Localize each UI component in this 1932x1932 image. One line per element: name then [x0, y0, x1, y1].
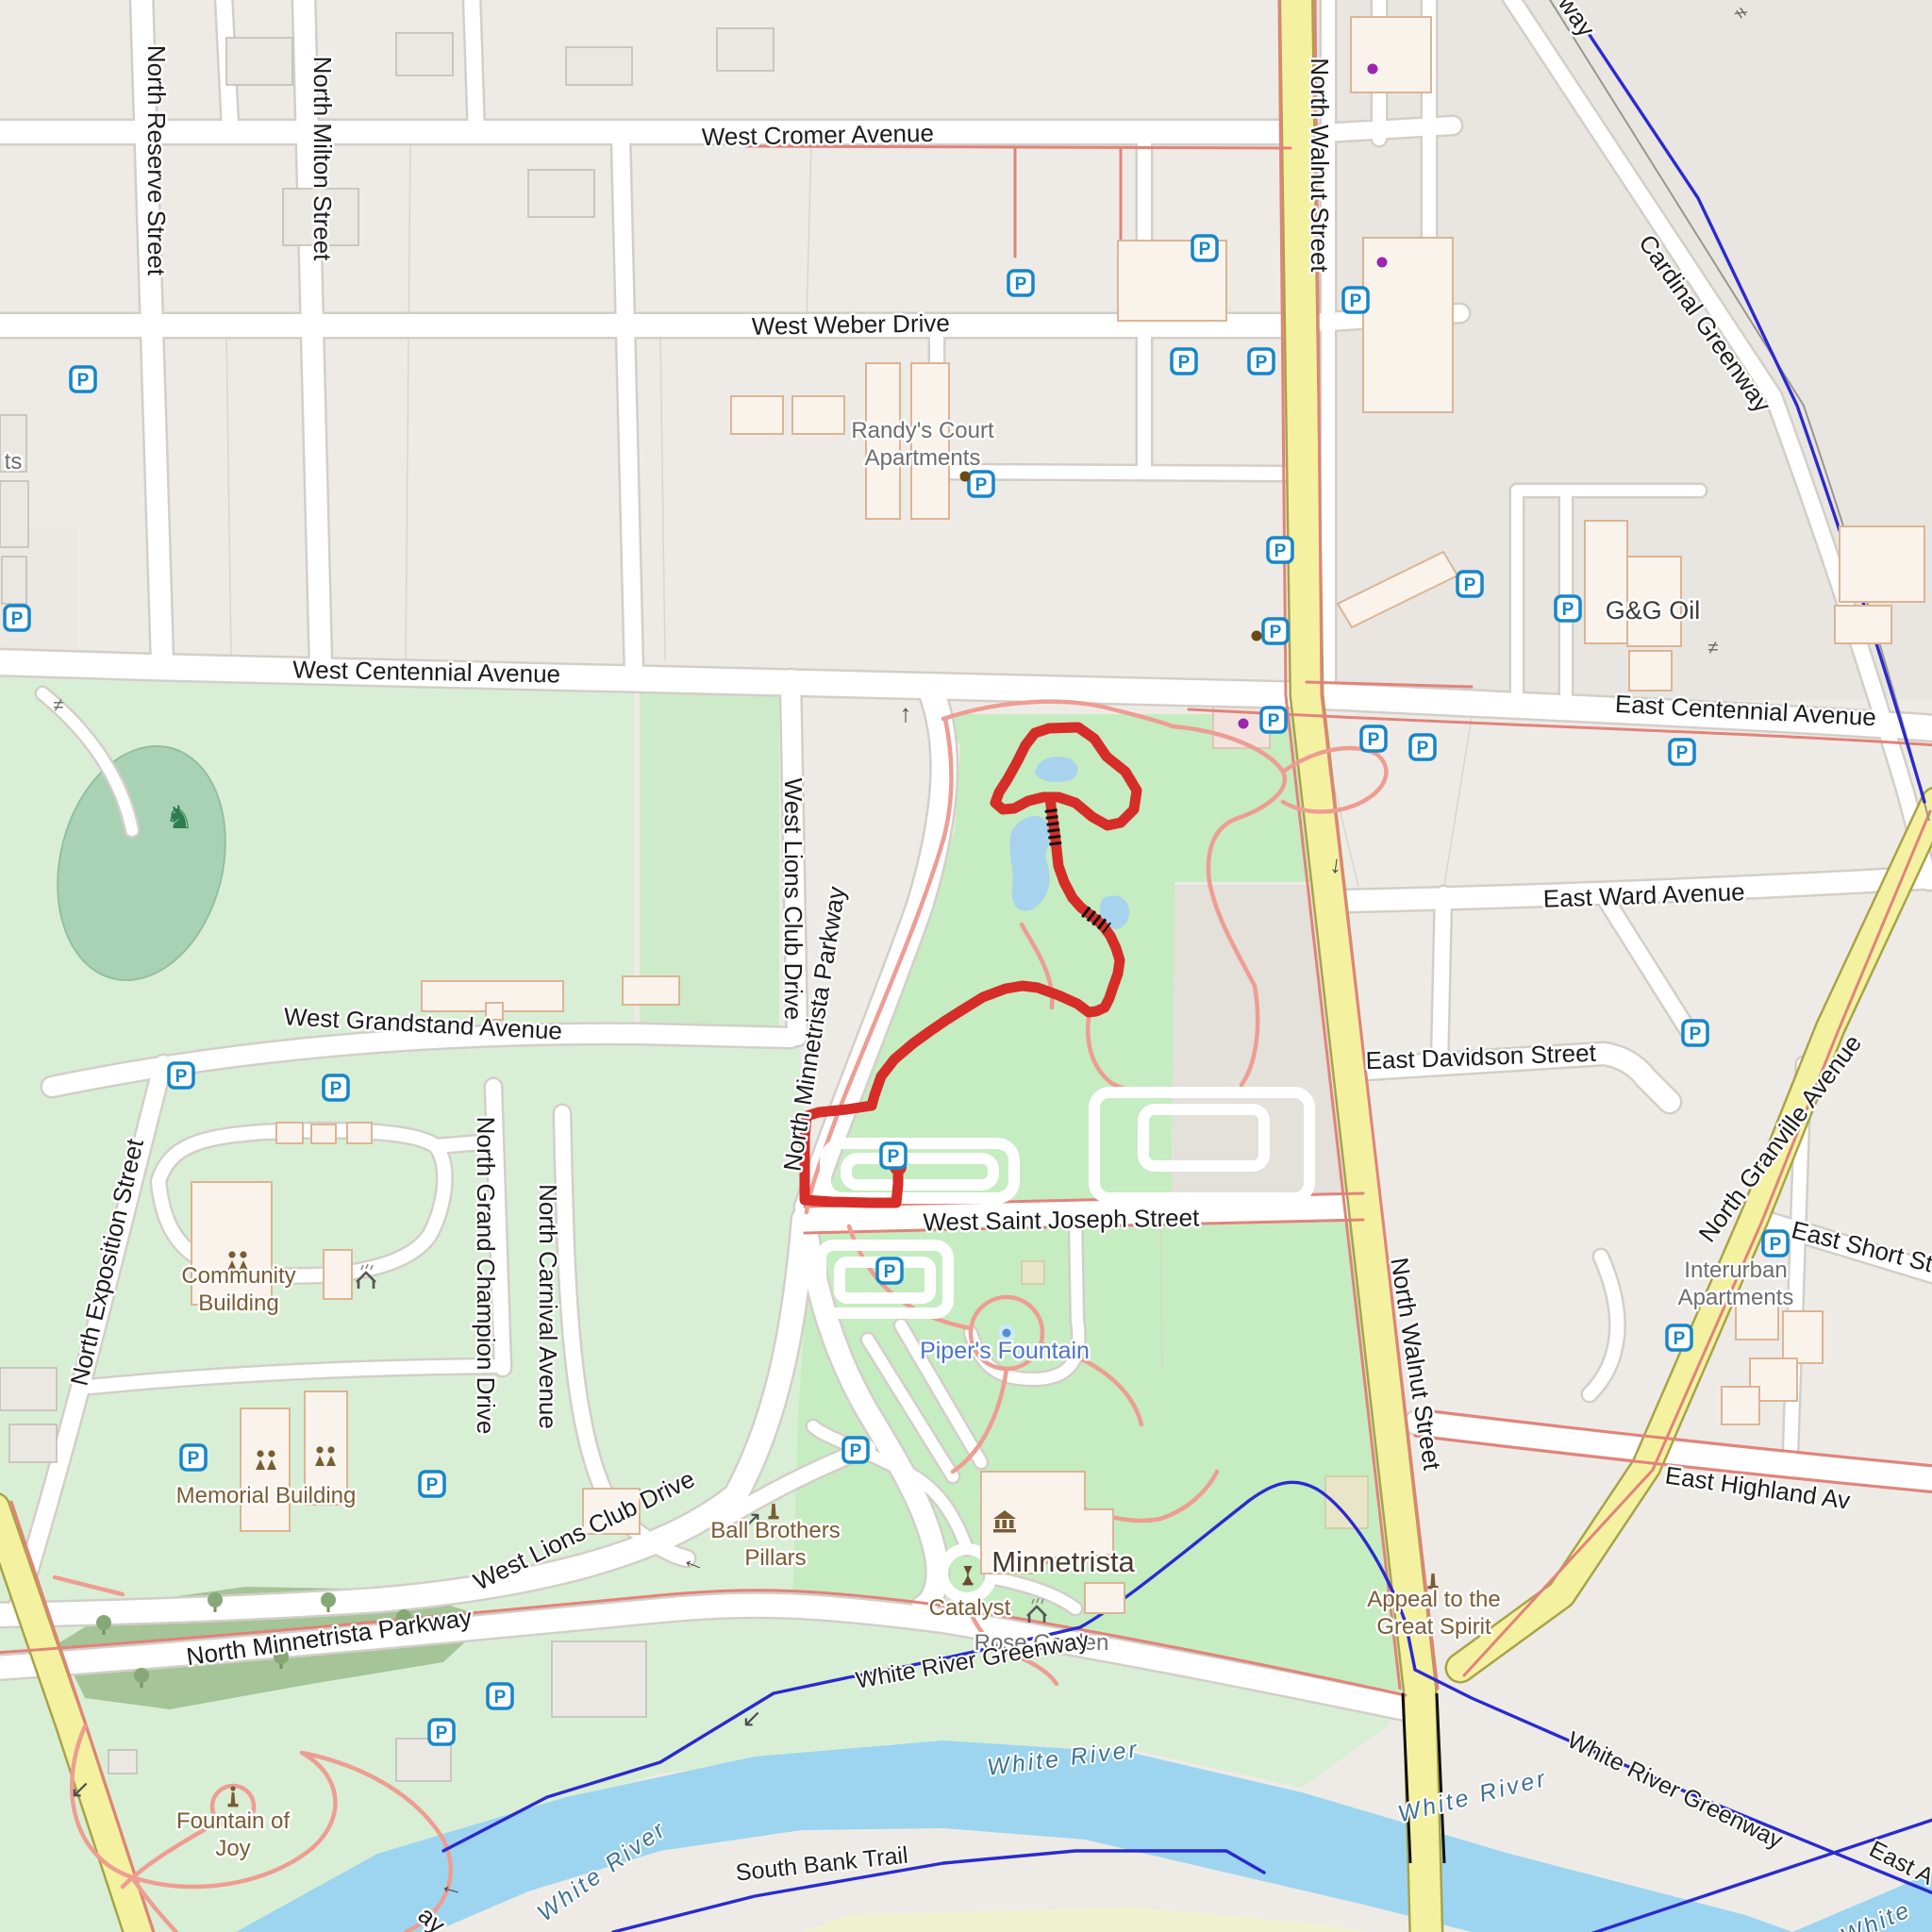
svg-text:P: P	[1417, 739, 1429, 758]
svg-text:P: P	[188, 1449, 200, 1469]
svg-text:P: P	[1562, 600, 1574, 620]
svg-text:P: P	[330, 1079, 342, 1099]
svg-text:P: P	[436, 1724, 448, 1743]
parking-icon: P	[1667, 1325, 1691, 1350]
parking-icon: P	[1249, 349, 1274, 374]
parking-icon: P	[843, 1438, 868, 1462]
gate-icon: ≠	[1708, 638, 1719, 658]
parking-icon: P	[5, 606, 29, 630]
gate-icon: ≠	[54, 695, 64, 716]
map-label: North Milton Street	[308, 57, 337, 262]
svg-text:P: P	[1268, 711, 1280, 731]
svg-text:♞: ♞	[165, 800, 193, 836]
svg-text:P: P	[1274, 541, 1287, 561]
map-label: West Saint Joseph Street	[923, 1203, 1200, 1236]
svg-text:P: P	[975, 475, 988, 495]
map-label: West Centennial Avenue	[292, 656, 560, 689]
map-label: North Walnut Street	[1306, 58, 1334, 273]
parking-icon: P	[1261, 708, 1286, 732]
poi-dot	[1377, 258, 1388, 268]
map-label: North Carnival Avenue	[534, 1184, 562, 1429]
parking-icon: P	[420, 1472, 444, 1496]
map-label: West Weber Drive	[752, 308, 950, 341]
map-label: Minnetrista	[991, 1545, 1135, 1578]
parking-icon: P	[1263, 619, 1288, 643]
parking-icon: P	[71, 367, 95, 391]
map-label: ts	[5, 449, 23, 475]
map-label: North Grand Champion Drive	[472, 1117, 500, 1435]
svg-text:P: P	[1256, 353, 1268, 373]
map-label: West Cromer Avenue	[702, 119, 935, 151]
svg-text:P: P	[1676, 743, 1689, 763]
parking-icon: P	[429, 1720, 454, 1744]
parking-icon: P	[1268, 538, 1292, 562]
parking-icon: P	[1556, 596, 1580, 621]
svg-text:P: P	[175, 1067, 188, 1087]
parking-icon: P	[877, 1258, 902, 1283]
horse-rider-icon: ♞	[165, 800, 193, 836]
oneway-arrow-icon: ↙	[70, 1774, 91, 1803]
poi-dot	[960, 472, 971, 482]
map-label: G&G Oil	[1606, 596, 1701, 625]
map-label: Memorial Building	[176, 1483, 357, 1508]
svg-text:P: P	[1015, 275, 1027, 294]
parking-icon: P	[324, 1075, 348, 1100]
parking-icon: P	[1670, 740, 1694, 764]
svg-text:≠: ≠	[1708, 638, 1719, 658]
svg-text:P: P	[888, 1147, 900, 1167]
oneway-arrow-icon: ↑	[900, 699, 912, 727]
parking-icon: P	[1361, 726, 1386, 751]
svg-text:P: P	[1674, 1329, 1686, 1349]
svg-text:P: P	[884, 1262, 896, 1282]
svg-text:P: P	[11, 609, 24, 629]
svg-text:≠: ≠	[54, 695, 64, 716]
map-svg: ♞≠≠≠PPPPPPPPPPPPPPPPPPPPPPPPPPPP↑↓↗↙↙←← …	[0, 0, 1932, 1932]
svg-text:P: P	[1350, 291, 1362, 311]
svg-text:P: P	[850, 1441, 862, 1461]
parking-icon: P	[1410, 735, 1435, 759]
map-label: Piper's Fountain	[920, 1338, 1090, 1364]
parking-icon: P	[969, 472, 993, 496]
parking-icon: P	[1192, 236, 1217, 260]
parking-icon: P	[181, 1445, 206, 1470]
parking-icon: P	[881, 1143, 906, 1168]
svg-text:P: P	[1270, 623, 1282, 642]
parking-icon: P	[1343, 288, 1368, 312]
svg-text:P: P	[494, 1688, 507, 1707]
svg-text:P: P	[1770, 1235, 1782, 1255]
map-label: Catalyst	[929, 1595, 1011, 1621]
parking-icon: P	[1008, 271, 1033, 295]
poi-dot	[1368, 64, 1378, 75]
parking-icon: P	[1172, 349, 1196, 374]
map-label: North Reserve Street	[142, 45, 171, 276]
parking-icon: P	[1763, 1231, 1788, 1256]
svg-text:P: P	[1690, 1024, 1702, 1044]
svg-text:P: P	[1464, 575, 1476, 595]
poi-dot	[1252, 631, 1262, 641]
svg-text:P: P	[1178, 353, 1191, 373]
parking-icon: P	[169, 1063, 193, 1088]
map-canvas[interactable]: ♞≠≠≠PPPPPPPPPPPPPPPPPPPPPPPPPPPP↑↓↗↙↙←← …	[0, 0, 1932, 1932]
map-label: West Lions Club Drive	[779, 778, 808, 1021]
parking-icon: P	[488, 1684, 512, 1708]
svg-text:P: P	[1199, 240, 1211, 259]
svg-text:P: P	[1368, 730, 1380, 750]
parking-icon: P	[1457, 572, 1482, 596]
svg-text:P: P	[77, 371, 90, 391]
svg-text:P: P	[426, 1475, 439, 1495]
oneway-arrow-icon: ↙	[741, 1704, 762, 1732]
poi-dot	[1239, 719, 1249, 729]
parking-icon: P	[1683, 1021, 1707, 1045]
